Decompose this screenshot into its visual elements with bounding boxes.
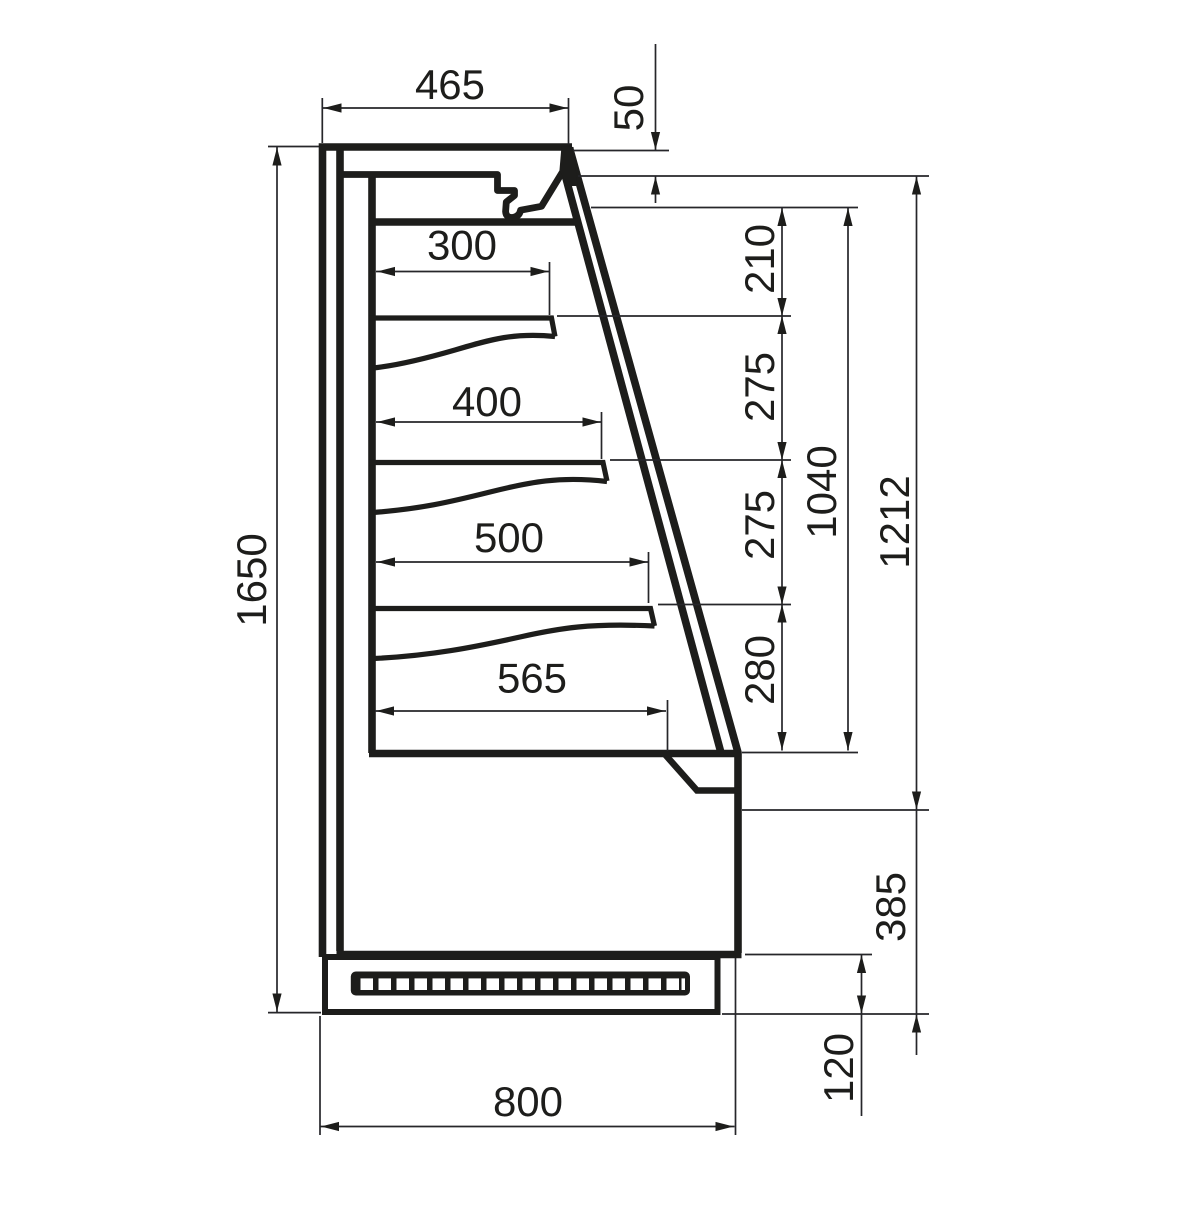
svg-text:1212: 1212 [871, 475, 918, 568]
svg-text:275: 275 [736, 352, 783, 422]
svg-text:1650: 1650 [228, 533, 275, 626]
svg-text:465: 465 [415, 61, 485, 108]
svg-text:120: 120 [815, 1033, 862, 1103]
svg-text:280: 280 [736, 635, 783, 705]
svg-text:500: 500 [474, 514, 544, 561]
svg-text:1040: 1040 [798, 445, 845, 538]
svg-text:400: 400 [452, 378, 522, 425]
svg-text:210: 210 [736, 224, 783, 294]
svg-text:800: 800 [493, 1078, 563, 1125]
svg-text:385: 385 [867, 872, 914, 942]
svg-text:275: 275 [736, 490, 783, 560]
svg-text:565: 565 [497, 655, 567, 702]
svg-text:50: 50 [605, 85, 652, 132]
svg-text:300: 300 [427, 222, 497, 269]
